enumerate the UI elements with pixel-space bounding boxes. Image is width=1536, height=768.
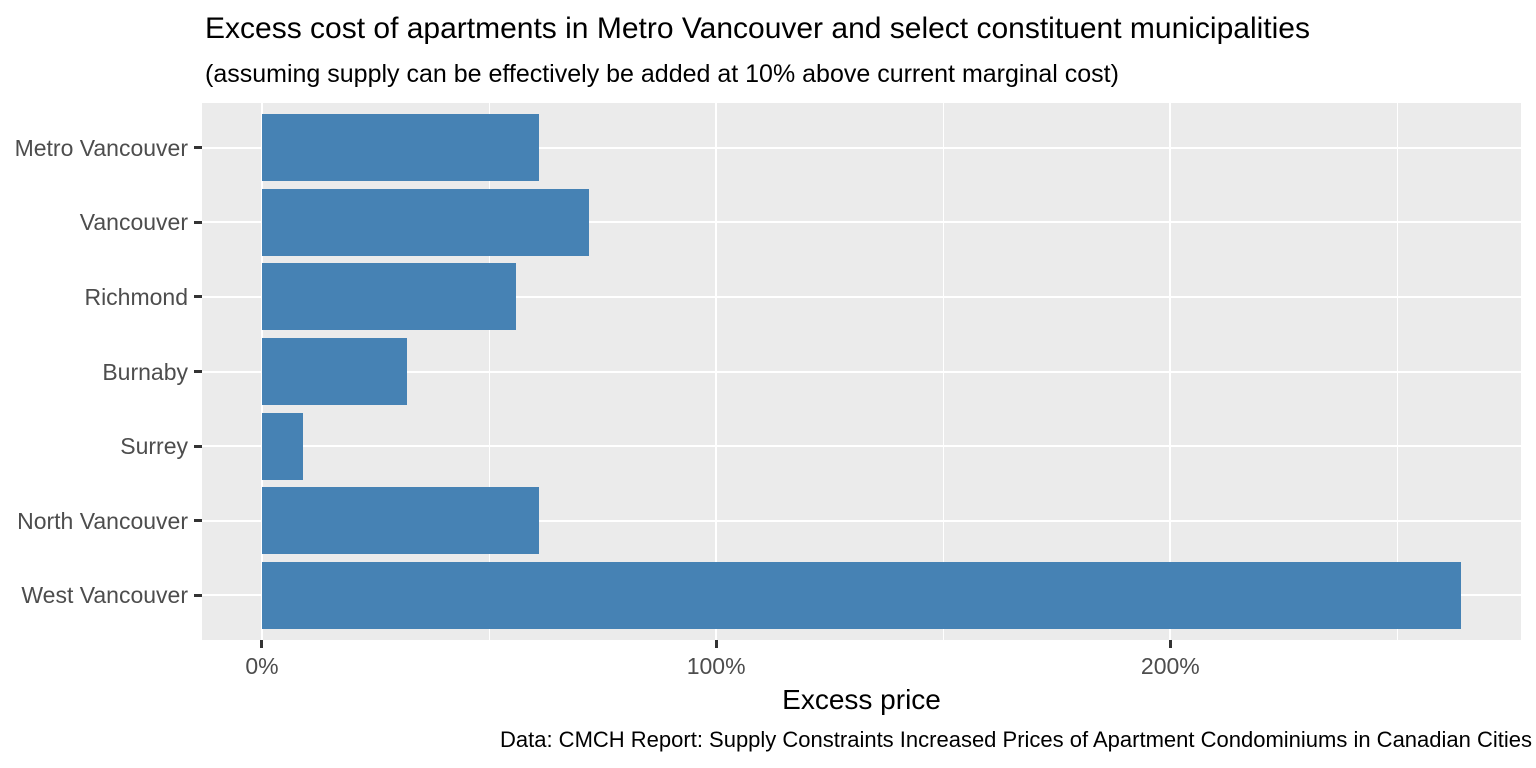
- y-tick: [194, 370, 202, 373]
- bar-burnaby: [262, 338, 407, 405]
- y-axis-label-vancouver: Vancouver: [0, 208, 188, 236]
- bar-surrey: [262, 413, 303, 480]
- x-tick-label: 200%: [1100, 653, 1240, 679]
- y-tick: [194, 519, 202, 522]
- y-tick: [194, 146, 202, 149]
- bar-chart: Excess cost of apartments in Metro Vanco…: [0, 0, 1536, 768]
- x-tick-label: 100%: [646, 653, 786, 679]
- y-tick: [194, 295, 202, 298]
- y-tick: [194, 221, 202, 224]
- bar-vancouver: [262, 189, 589, 256]
- x-tick-label: 0%: [192, 653, 332, 679]
- x-tick: [1169, 640, 1172, 648]
- x-tick: [715, 640, 718, 648]
- chart-subtitle: (assuming supply can be effectively be a…: [205, 60, 1119, 89]
- x-axis-title: Excess price: [202, 684, 1521, 716]
- bar-west-vancouver: [262, 562, 1461, 629]
- x-tick: [260, 640, 263, 648]
- plot-panel: [202, 103, 1521, 640]
- bar-metro-vancouver: [262, 114, 539, 181]
- y-axis-label-richmond: Richmond: [0, 283, 188, 311]
- chart-caption: Data: CMCH Report: Supply Constraints In…: [32, 727, 1532, 753]
- y-tick: [194, 594, 202, 597]
- bar-richmond: [262, 263, 516, 330]
- y-axis-label-west-vancouver: West Vancouver: [0, 581, 188, 609]
- gridline-major-horizontal: [202, 445, 1521, 447]
- y-tick: [194, 445, 202, 448]
- y-axis-label-burnaby: Burnaby: [0, 358, 188, 386]
- y-axis-label-metro-vancouver: Metro Vancouver: [0, 134, 188, 162]
- chart-title: Excess cost of apartments in Metro Vanco…: [205, 12, 1310, 46]
- y-axis-label-surrey: Surrey: [0, 432, 188, 460]
- bar-north-vancouver: [262, 487, 539, 554]
- y-axis-label-north-vancouver: North Vancouver: [0, 507, 188, 535]
